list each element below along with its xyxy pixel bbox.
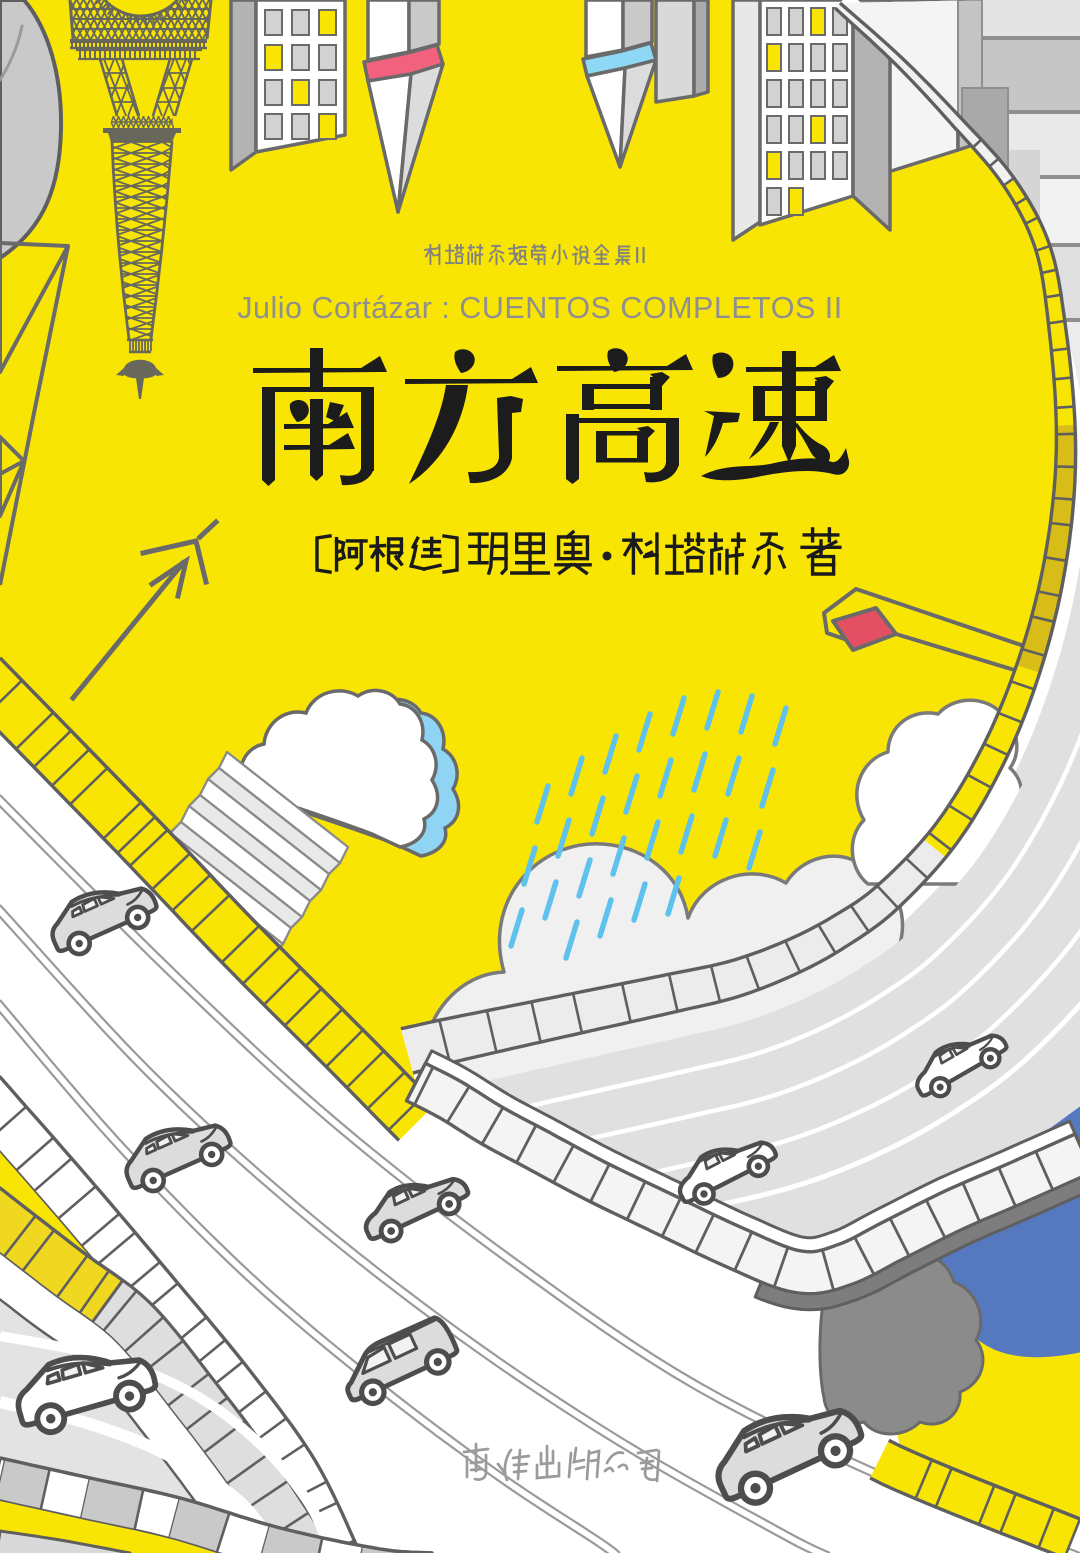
- svg-text:Julio Cortázar : CUENTOS COMPL: Julio Cortázar : CUENTOS COMPLETOS II: [237, 291, 843, 325]
- svg-text:II: II: [634, 242, 647, 268]
